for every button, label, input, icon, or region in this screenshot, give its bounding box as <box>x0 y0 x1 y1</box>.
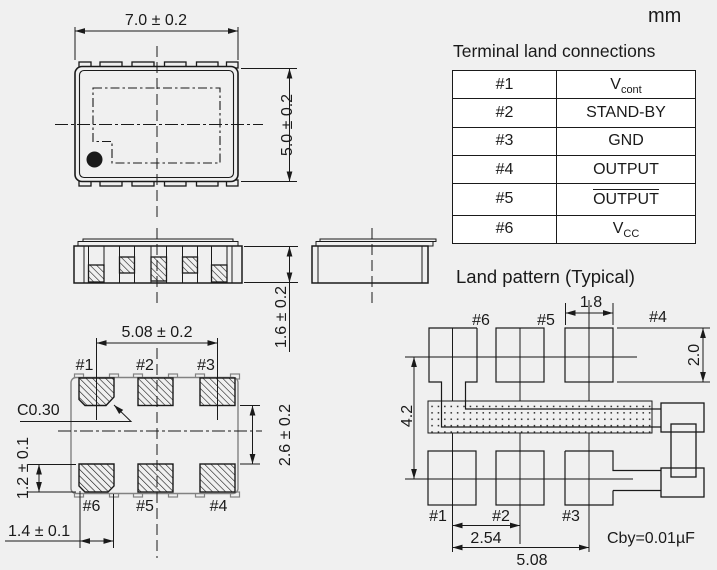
side-view-thickness-dim-text: 1.6 ± 0.2 <box>273 286 290 348</box>
terminal-land-connections-table: #1 Vcont #2 STAND-BY #3 GND #4 OUTPUT #5… <box>452 70 696 244</box>
bottom-view-label-5: #5 <box>136 498 154 515</box>
land-label-5: #5 <box>537 312 555 329</box>
bottom-view-pad-width-dim-text: 1.4 ± 0.1 <box>8 523 70 540</box>
pin-number: #5 <box>453 184 557 215</box>
land-span-dim-text: 5.08 <box>516 552 547 569</box>
top-view: 7.0 ± 0.2 5.0 ± 0.2 <box>55 12 297 220</box>
land-label-1: #1 <box>429 508 447 525</box>
bottom-view-row-gap-dim-text: 2.6 ± 0.2 <box>277 404 294 466</box>
cap-land-bottom <box>661 468 704 497</box>
land-pad-width-dim-text: 1.8 <box>580 294 602 311</box>
pad-6 <box>79 464 114 492</box>
pad-2 <box>138 378 173 406</box>
land-label-4: #4 <box>649 309 667 326</box>
pin-signal-inverted: OUTPUT <box>557 184 696 215</box>
pin-number: #1 <box>453 71 557 99</box>
bottom-view-pad-height-dim-text: 1.2 ± 0.1 <box>15 437 32 499</box>
terminal-table-title: Terminal land connections <box>453 41 655 62</box>
unit-label: mm <box>648 5 681 28</box>
pin-number: #2 <box>453 99 557 127</box>
package-drawing-sheet: 7.0 ± 0.2 5.0 ± 0.2 <box>0 0 717 570</box>
bottom-view-label-4: #4 <box>210 498 228 515</box>
bottom-view-label-2: #2 <box>136 357 154 374</box>
side-view-front <box>74 228 242 308</box>
pad-4 <box>200 464 235 492</box>
land-pattern-title: Land pattern (Typical) <box>456 266 635 288</box>
top-view-height-dim-text: 5.0 ± 0.2 <box>279 94 296 156</box>
pin1-marker-dot <box>87 152 103 168</box>
land-label-3: #3 <box>562 508 580 525</box>
table-row: #3 GND <box>453 127 696 155</box>
bypass-cap-note: Cby=0.01µF <box>607 530 695 547</box>
bottom-view-label-6: #6 <box>83 498 101 515</box>
land-label-6: #6 <box>472 312 490 329</box>
pin-signal: VCC <box>557 215 696 243</box>
bottom-view-label-1: #1 <box>76 357 94 374</box>
bypass-capacitor <box>661 403 704 497</box>
land-pad-height-dim-text: 2.0 <box>686 344 703 366</box>
land-pitch-dim-text: 2.54 <box>470 530 501 547</box>
table-row: #6 VCC <box>453 215 696 243</box>
bottom-view: 5.08 ± 0.2 #1 #2 #3 C0.30 2.6 ± 0.2 1.2 … <box>5 324 294 558</box>
side-view-front-pads <box>89 257 228 282</box>
table-row: #1 Vcont <box>453 71 696 99</box>
table-row: #4 OUTPUT <box>453 155 696 183</box>
bottom-view-row-gap-dimension <box>240 406 260 465</box>
bottom-view-pad-span-dim-text: 5.08 ± 0.2 <box>121 324 192 341</box>
bottom-view-label-3: #3 <box>197 357 215 374</box>
pin-number: #6 <box>453 215 557 243</box>
land-pattern: #6 #5 #4 #1 #2 #3 1.8 2.0 4.2 2.54 <box>399 294 710 569</box>
bottom-view-pad-height-dimension <box>28 465 76 493</box>
top-view-width-dim-text: 7.0 ± 0.2 <box>125 12 187 29</box>
chamfer-label-text: C0.30 <box>17 402 60 419</box>
table-row: #5 OUTPUT <box>453 184 696 215</box>
pin-signal: STAND-BY <box>557 99 696 127</box>
pin-number: #3 <box>453 127 557 155</box>
pin-signal: OUTPUT <box>557 155 696 183</box>
pin-signal: GND <box>557 127 696 155</box>
side-view-lateral-body <box>312 246 428 283</box>
pin-signal: Vcont <box>557 71 696 99</box>
land-ground-band <box>428 401 652 433</box>
side-view-lateral <box>312 228 436 308</box>
land-row-span-dim-text: 4.2 <box>399 405 416 427</box>
pad-5 <box>138 464 173 492</box>
land-label-2: #2 <box>492 508 510 525</box>
table-row: #2 STAND-BY <box>453 99 696 127</box>
cap-land-top <box>661 403 704 432</box>
pin-number: #4 <box>453 155 557 183</box>
